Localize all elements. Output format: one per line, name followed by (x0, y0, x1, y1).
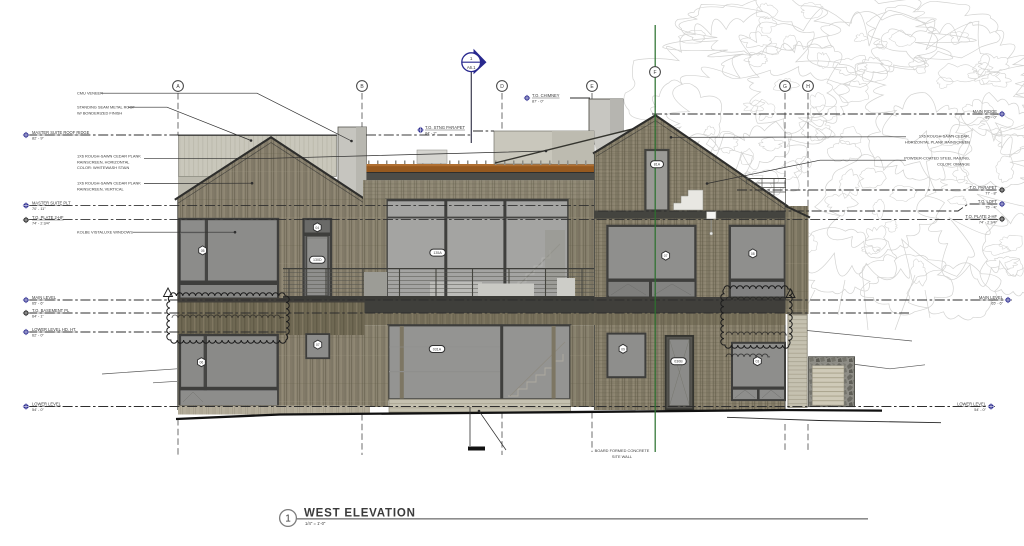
svg-text:T.O. LOFT: T.O. LOFT (978, 199, 998, 204)
svg-text:07: 07 (664, 254, 668, 258)
svg-text:09: 09 (621, 347, 625, 351)
svg-text:SITE WALL: SITE WALL (612, 454, 633, 459)
svg-text:W/ BONDERIZED FINISH: W/ BONDERIZED FINISH (77, 110, 122, 115)
svg-text:1X6 ROUGH-SAWN CEDAR,: 1X6 ROUGH-SAWN CEDAR, (919, 134, 970, 139)
svg-text:81A: 81A (654, 163, 661, 167)
svg-text:74' - 2 3/4": 74' - 2 3/4" (32, 222, 51, 226)
svg-text:87' - 0": 87' - 0" (532, 100, 544, 104)
svg-text:08: 08 (751, 252, 755, 256)
svg-text:1: 1 (285, 514, 291, 525)
svg-text:F: F (653, 70, 656, 76)
svg-text:70' - 11": 70' - 11" (32, 207, 46, 211)
svg-text:LOWER LEVEL: LOWER LEVEL (32, 401, 62, 406)
svg-text:04: 04 (315, 226, 319, 230)
svg-text:135A: 135A (433, 251, 442, 255)
svg-text:030B: 030B (674, 360, 683, 364)
svg-text:64' - 1": 64' - 1" (32, 315, 44, 319)
svg-text:T.O. PLATE 2-HF: T.O. PLATE 2-HF (32, 215, 64, 220)
svg-text:LOWER LEVEL: LOWER LEVEL (957, 401, 987, 406)
svg-text:T.O. CHIMNEY: T.O. CHIMNEY (532, 93, 560, 98)
svg-text:74' - 2 3/4": 74' - 2 3/4" (979, 221, 998, 225)
svg-text:1X6 ROUGH-SAWN CEDAR PLANK: 1X6 ROUGH-SAWN CEDAR PLANK (77, 154, 141, 159)
svg-text:82' - 9": 82' - 9" (32, 137, 44, 141)
svg-text:COLOR: WHITEWASH STAIN: COLOR: WHITEWASH STAIN (77, 165, 129, 170)
svg-text:LOWER LEVEL HD. HT.: LOWER LEVEL HD. HT. (32, 327, 76, 332)
svg-text:130D: 130D (313, 258, 322, 262)
svg-text:COLOR: ORANGE: COLOR: ORANGE (937, 161, 970, 166)
svg-text:65' - 6": 65' - 6" (32, 302, 44, 306)
svg-text:1X6 ROUGH-SAWN CEDAR PLANK: 1X6 ROUGH-SAWN CEDAR PLANK (77, 181, 141, 186)
svg-text:KOLBE VISTALUXE WINDOWS: KOLBE VISTALUXE WINDOWS (77, 230, 133, 235)
svg-text:54' - 0": 54' - 0" (32, 408, 44, 412)
svg-text:T.O. STNG PARAPET: T.O. STNG PARAPET (425, 125, 465, 130)
svg-text:54' - 0": 54' - 0" (974, 408, 986, 412)
svg-text:MASTER SUITE ROOF RIDGE: MASTER SUITE ROOF RIDGE (32, 130, 90, 135)
svg-text:RAINSCREEN, VERTICAL: RAINSCREEN, VERTICAL (77, 186, 124, 191)
svg-text:1: 1 (470, 56, 473, 61)
svg-text:G: G (783, 84, 787, 90)
svg-text:A6.1: A6.1 (467, 65, 476, 70)
svg-text:WEST ELEVATION: WEST ELEVATION (304, 508, 416, 520)
svg-text:D: D (500, 84, 504, 90)
svg-text:MAIN LEVEL: MAIN LEVEL (979, 295, 1004, 300)
svg-text:T.O. PLATE 2-HF: T.O. PLATE 2-HF (965, 214, 997, 219)
svg-text:MAIN RIDGE: MAIN RIDGE (973, 109, 998, 114)
svg-text:T.O. PARAPET: T.O. PARAPET (970, 185, 998, 190)
svg-text:POWDER-COATED STEEL RAILING,: POWDER-COATED STEEL RAILING, (904, 156, 970, 161)
svg-text:T.O. BASEMENT PL: T.O. BASEMENT PL (32, 308, 70, 313)
svg-text:75' - 4": 75' - 4" (985, 206, 997, 210)
svg-text:031A: 031A (433, 347, 442, 351)
svg-text:MASTER SUITE PLT: MASTER SUITE PLT (32, 200, 71, 205)
svg-text:85' - 0": 85' - 0" (985, 116, 997, 120)
svg-text:05: 05 (201, 249, 205, 253)
svg-text:84' - 2": 84' - 2" (425, 132, 437, 136)
svg-text:CMU VENEER: CMU VENEER (77, 91, 103, 96)
svg-text:HORIZONTAL PLANK RAINSCREEN: HORIZONTAL PLANK RAINSCREEN (905, 139, 970, 144)
svg-text:06: 06 (200, 361, 204, 365)
svg-text:07: 07 (316, 343, 320, 347)
svg-text:65' - 6": 65' - 6" (991, 302, 1003, 306)
svg-text:62' - 0": 62' - 0" (32, 334, 44, 338)
svg-text:MAIN LEVEL: MAIN LEVEL (32, 295, 57, 300)
svg-text:STANDING SEAM METAL ROOF: STANDING SEAM METAL ROOF (77, 105, 135, 110)
svg-text:RAINSCREEN, HORIZONTAL: RAINSCREEN, HORIZONTAL (77, 159, 130, 164)
svg-text:H: H (806, 84, 810, 90)
svg-text:77' - 8": 77' - 8" (985, 192, 997, 196)
svg-text:1/4" = 1'-0": 1/4" = 1'-0" (305, 521, 326, 526)
svg-text:BOARD FORMED CONCRETE: BOARD FORMED CONCRETE (595, 448, 650, 453)
svg-text:03: 03 (756, 360, 760, 364)
